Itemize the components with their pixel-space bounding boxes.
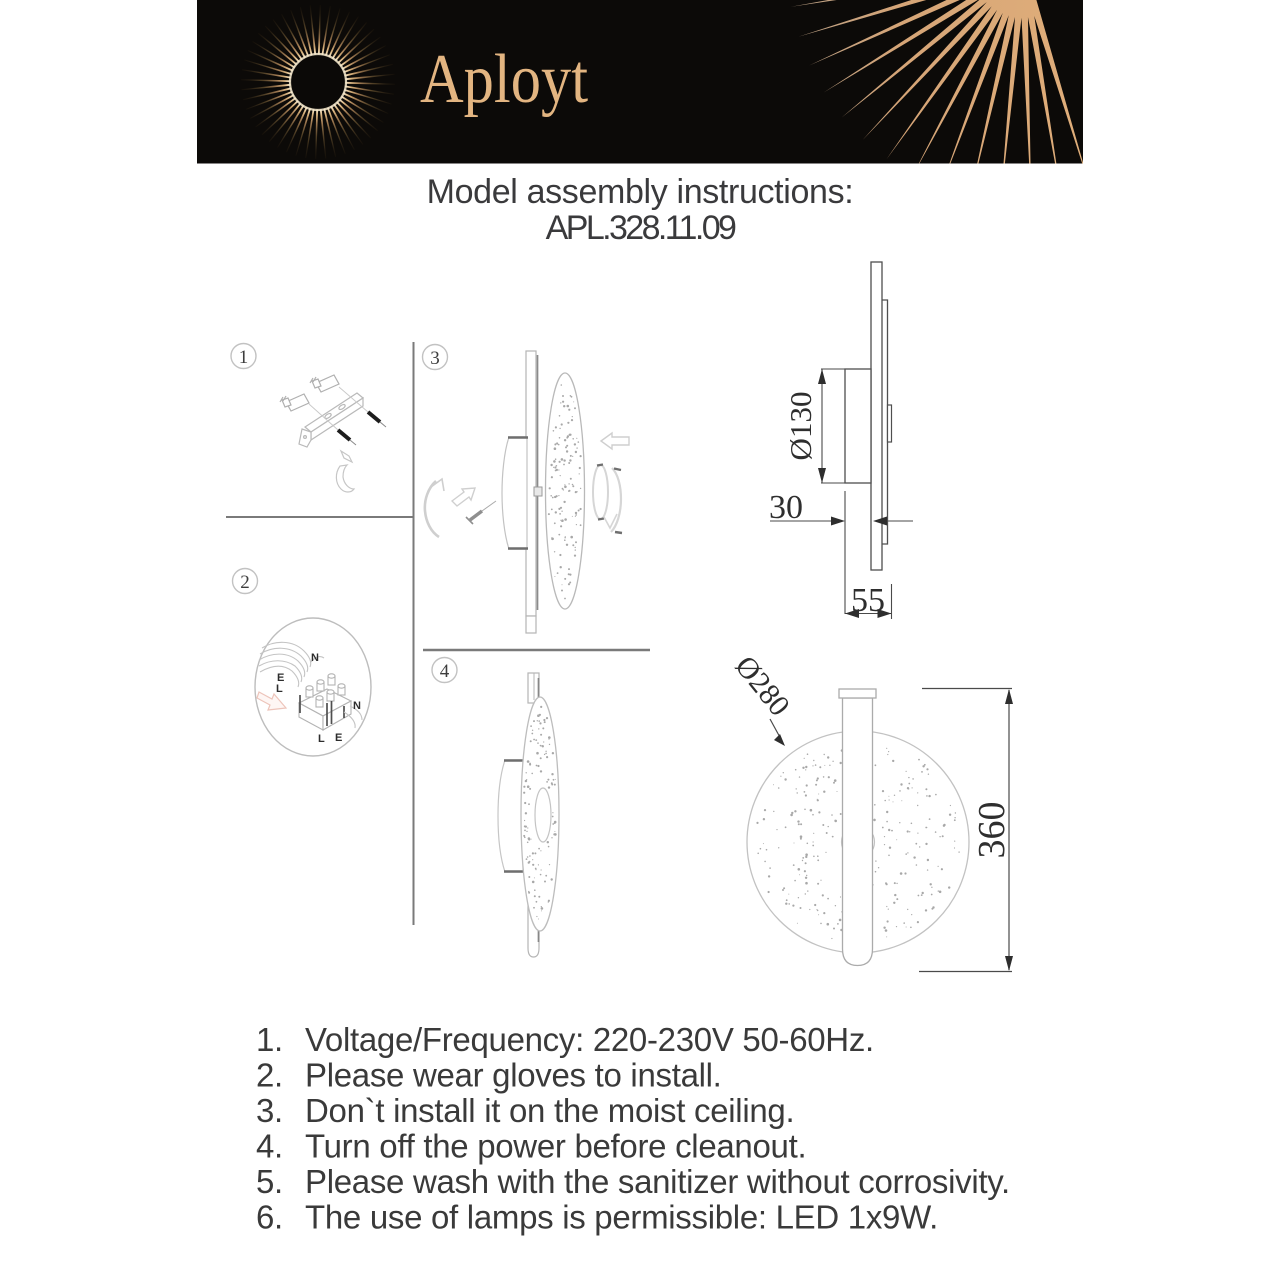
svg-text:5.: 5. — [256, 1163, 283, 1200]
svg-text:Voltage/Frequency: 220-230V 50: Voltage/Frequency: 220-230V 50-60Hz. — [305, 1021, 874, 1058]
svg-text:E: E — [335, 732, 342, 744]
svg-text:The use of lamps is permissibl: The use of lamps is permissible: LED 1x9… — [305, 1199, 938, 1236]
svg-text:Please wash with the sanitizer: Please wash with the sanitizer without c… — [305, 1163, 1010, 1200]
svg-text:L: L — [276, 683, 283, 695]
svg-text:1: 1 — [239, 347, 249, 368]
svg-text:Turn off the power before clea: Turn off the power before cleanout. — [305, 1128, 806, 1165]
svg-text:3: 3 — [430, 348, 440, 369]
svg-text:N: N — [311, 652, 319, 664]
svg-text:6.: 6. — [256, 1199, 283, 1236]
svg-text:Don`t install it on the moist: Don`t install it on the moist ceiling. — [305, 1092, 794, 1129]
svg-text:4: 4 — [440, 661, 450, 682]
svg-text:Aployt: Aployt — [420, 41, 588, 118]
svg-text:360: 360 — [971, 802, 1013, 859]
svg-text:2.: 2. — [256, 1057, 283, 1094]
svg-text:2: 2 — [240, 572, 250, 593]
svg-text:Model assembly instructions:: Model assembly instructions: — [427, 173, 854, 211]
svg-text:4.: 4. — [256, 1128, 283, 1165]
svg-text:3.: 3. — [256, 1092, 283, 1129]
svg-text:L: L — [318, 733, 325, 745]
svg-text:1.: 1. — [256, 1021, 283, 1058]
svg-text:N: N — [353, 700, 361, 712]
svg-text:APL.328.11.09: APL.328.11.09 — [546, 209, 736, 247]
svg-text:Ø130: Ø130 — [783, 392, 818, 461]
svg-text:Please wear gloves to install.: Please wear gloves to install. — [305, 1057, 722, 1094]
